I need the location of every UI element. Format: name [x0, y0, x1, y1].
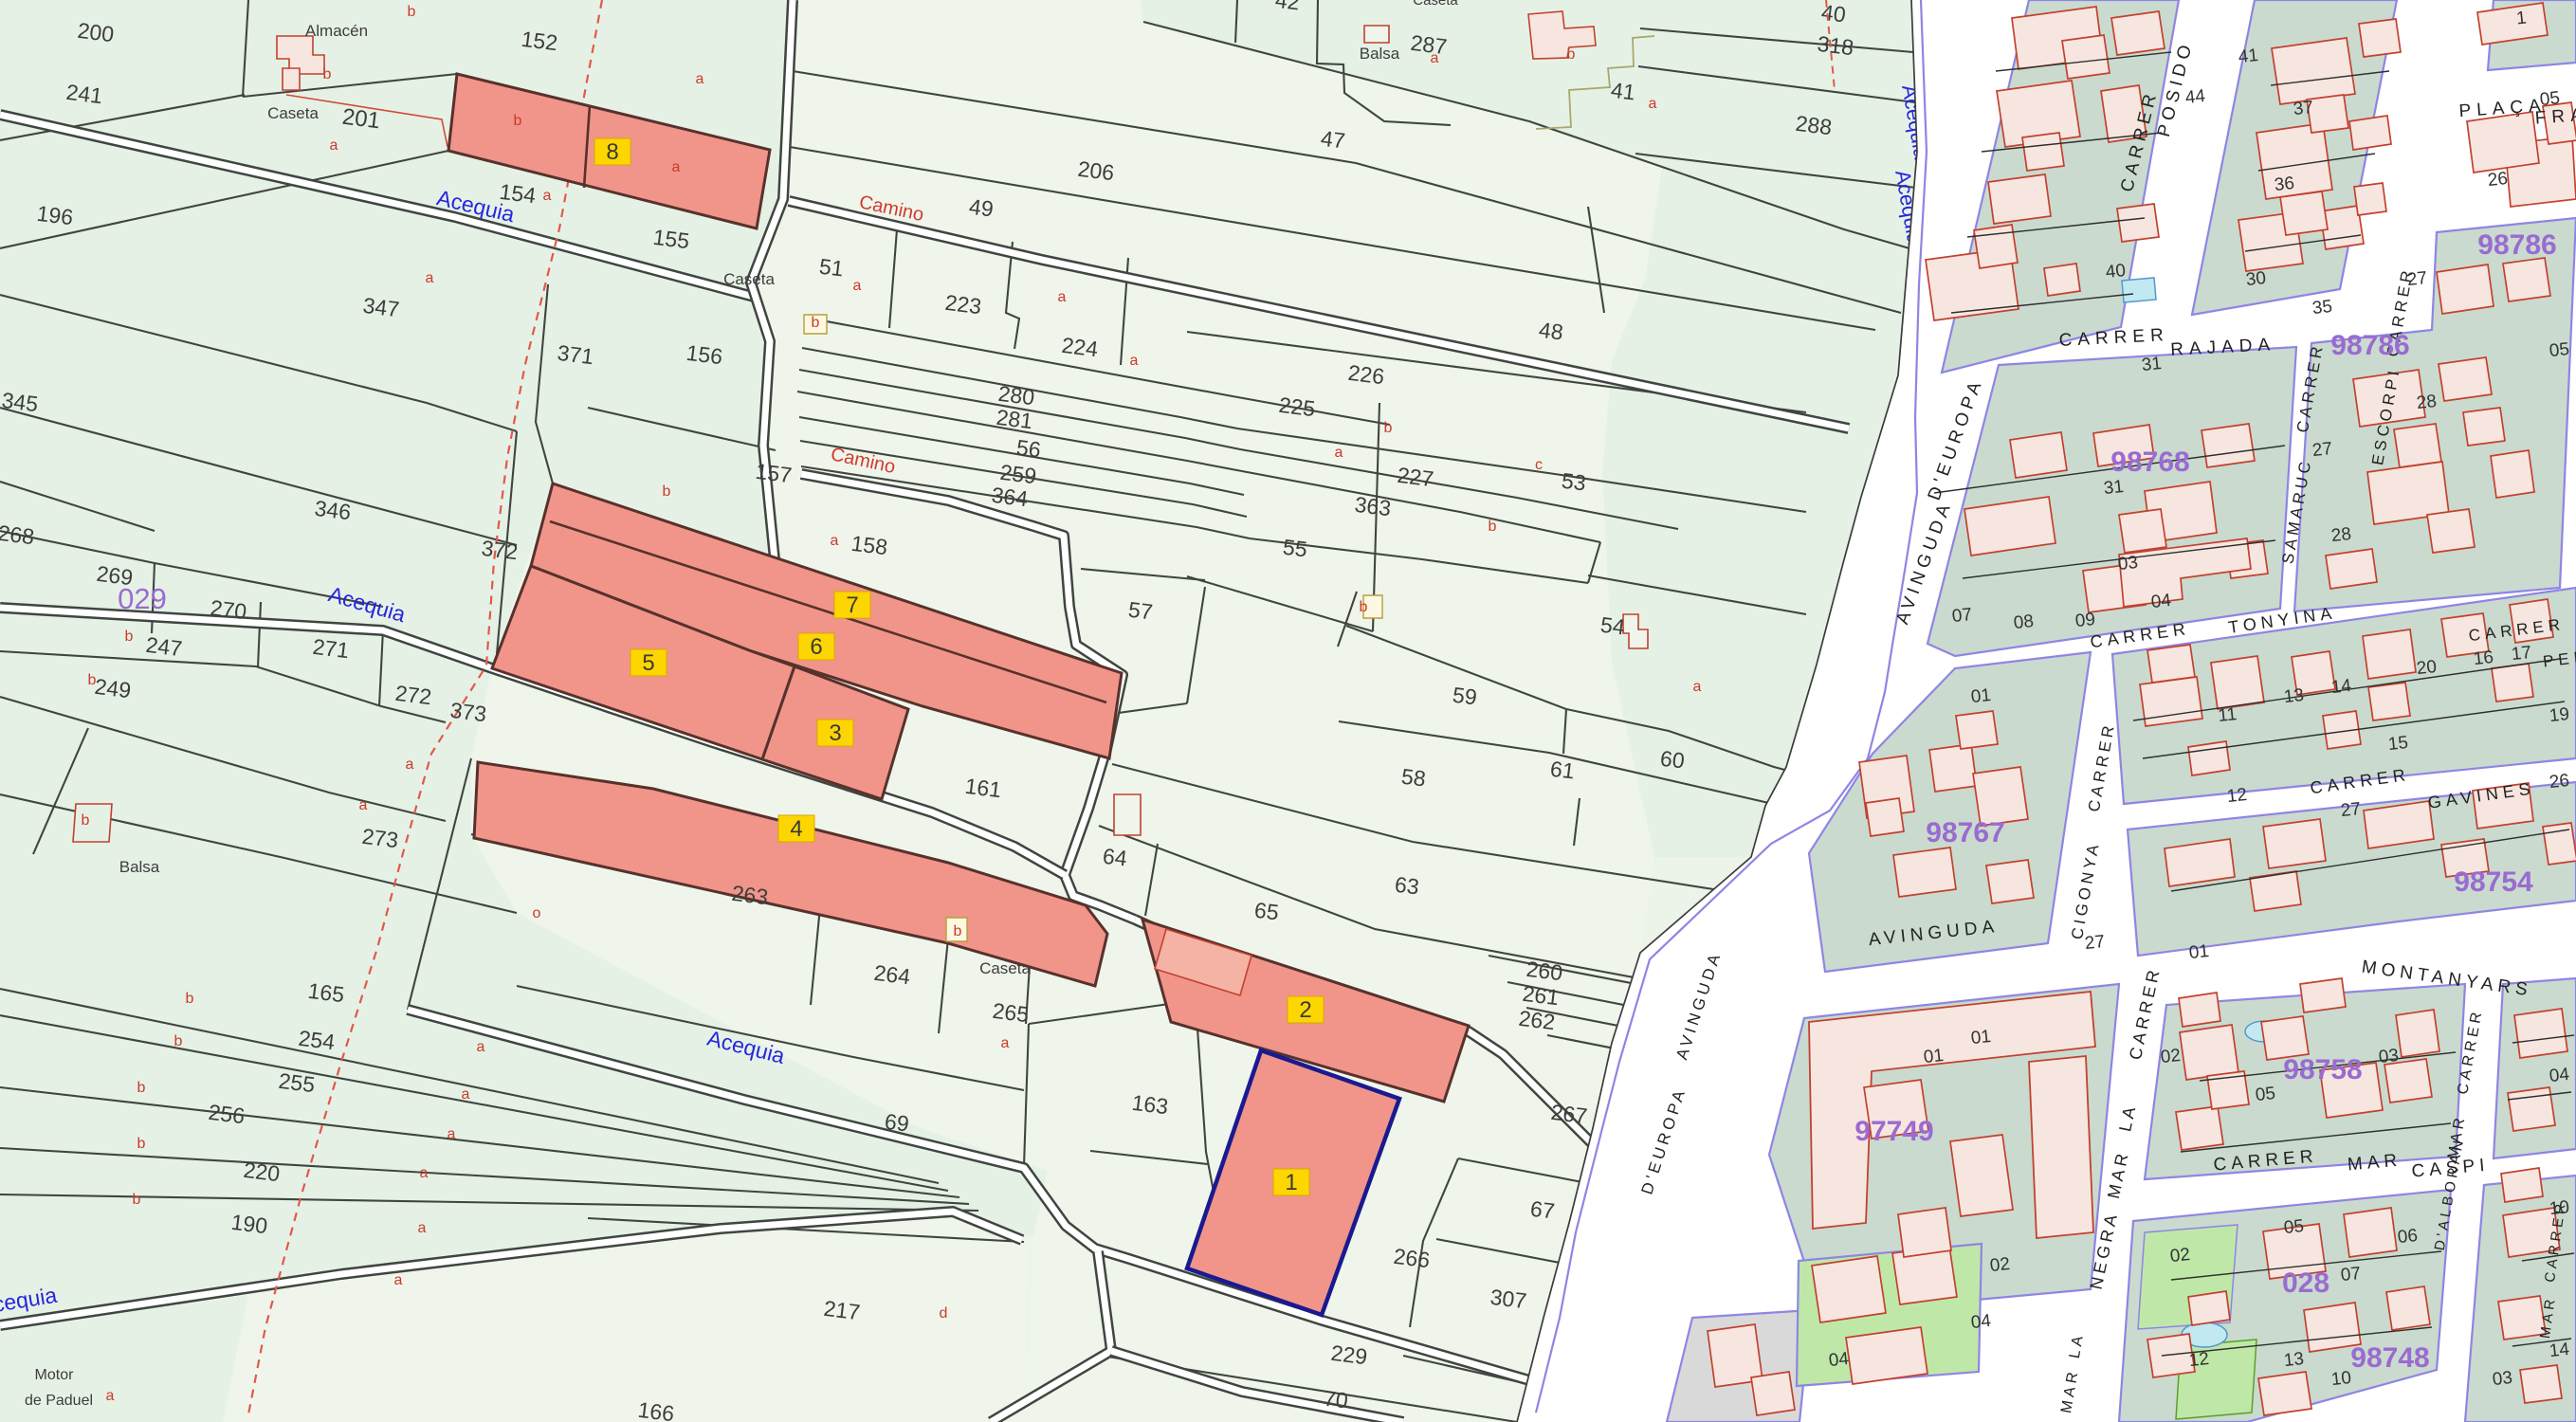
svg-text:b: b	[514, 113, 522, 129]
svg-text:262: 262	[1517, 1006, 1556, 1034]
svg-text:201: 201	[340, 104, 381, 135]
svg-text:268: 268	[0, 520, 36, 549]
svg-text:264: 264	[872, 960, 911, 990]
svg-text:13: 13	[2283, 685, 2305, 707]
svg-text:220: 220	[242, 1158, 281, 1186]
svg-text:Balsa: Balsa	[1360, 45, 1400, 63]
svg-text:a: a	[448, 1126, 456, 1142]
svg-text:12: 12	[2188, 1349, 2210, 1371]
svg-text:b: b	[174, 1033, 183, 1049]
svg-text:165: 165	[306, 978, 345, 1007]
svg-text:241: 241	[64, 80, 103, 108]
svg-text:19: 19	[2549, 704, 2570, 726]
svg-text:a: a	[1001, 1035, 1010, 1051]
svg-text:28: 28	[2330, 524, 2352, 546]
svg-text:20: 20	[2416, 657, 2438, 679]
svg-text:152: 152	[520, 27, 558, 55]
svg-text:265: 265	[991, 998, 1030, 1027]
svg-text:249: 249	[93, 674, 132, 702]
svg-text:1: 1	[2515, 9, 2528, 29]
svg-text:27: 27	[2406, 268, 2428, 290]
svg-text:o: o	[533, 905, 541, 921]
svg-text:a: a	[1693, 679, 1702, 695]
svg-text:b: b	[88, 672, 97, 688]
svg-text:26: 26	[2487, 169, 2509, 191]
svg-text:01: 01	[2188, 941, 2210, 963]
svg-text:b: b	[1567, 46, 1576, 63]
svg-text:98748: 98748	[2350, 1342, 2429, 1374]
svg-text:58: 58	[1400, 764, 1428, 792]
svg-text:d: d	[940, 1305, 948, 1322]
svg-text:28: 28	[2416, 392, 2438, 413]
svg-text:1: 1	[1285, 1170, 1297, 1195]
svg-text:13: 13	[2283, 1349, 2305, 1371]
svg-text:10: 10	[2549, 1197, 2570, 1219]
svg-text:02: 02	[2169, 1245, 2191, 1267]
svg-text:15: 15	[2387, 733, 2409, 755]
svg-text:36: 36	[2274, 173, 2295, 195]
svg-text:03: 03	[2378, 1046, 2400, 1067]
svg-text:a: a	[1649, 96, 1657, 112]
svg-text:41: 41	[2238, 46, 2259, 67]
svg-text:224: 224	[1060, 333, 1099, 362]
svg-text:31: 31	[2141, 354, 2163, 375]
svg-text:345: 345	[0, 388, 39, 416]
svg-text:157: 157	[754, 459, 793, 487]
svg-text:b: b	[954, 923, 962, 939]
svg-text:b: b	[133, 1192, 141, 1208]
svg-text:61: 61	[1549, 757, 1577, 784]
svg-text:372: 372	[480, 536, 519, 564]
svg-text:30: 30	[2245, 268, 2267, 290]
svg-text:373: 373	[448, 698, 487, 726]
svg-text:a: a	[106, 1388, 115, 1404]
svg-text:b: b	[1360, 599, 1368, 615]
svg-text:04: 04	[2150, 591, 2173, 612]
svg-text:40: 40	[2105, 261, 2127, 283]
svg-text:190: 190	[229, 1210, 268, 1238]
svg-text:a: a	[1431, 50, 1439, 66]
svg-text:97749: 97749	[1854, 1116, 1933, 1147]
svg-text:288: 288	[1794, 111, 1833, 139]
svg-text:10: 10	[2330, 1368, 2352, 1390]
svg-text:247: 247	[144, 632, 183, 661]
svg-text:03: 03	[2492, 1368, 2513, 1390]
svg-text:49: 49	[968, 194, 996, 222]
svg-text:a: a	[1058, 289, 1067, 305]
svg-text:35: 35	[2311, 297, 2333, 319]
svg-text:166: 166	[636, 1397, 675, 1422]
svg-text:09: 09	[2074, 610, 2096, 631]
svg-text:371: 371	[556, 340, 594, 369]
svg-text:a: a	[426, 270, 434, 286]
svg-text:Balsa: Balsa	[119, 858, 160, 876]
svg-text:54: 54	[1599, 612, 1627, 640]
svg-text:17: 17	[2511, 643, 2532, 665]
svg-text:029: 029	[118, 582, 167, 615]
svg-text:44: 44	[2184, 86, 2207, 108]
svg-text:05: 05	[2255, 1084, 2276, 1105]
svg-text:16: 16	[2473, 647, 2494, 669]
svg-text:364: 364	[990, 483, 1029, 512]
svg-text:206: 206	[1076, 156, 1115, 185]
svg-text:12: 12	[2226, 785, 2248, 807]
svg-text:a: a	[1130, 353, 1139, 369]
svg-text:56: 56	[1015, 435, 1043, 463]
svg-text:08: 08	[2013, 611, 2035, 633]
svg-text:4: 4	[790, 816, 802, 842]
svg-text:b: b	[82, 812, 90, 829]
svg-text:Caseta: Caseta	[1413, 0, 1458, 9]
svg-text:Motor: Motor	[35, 1367, 75, 1383]
svg-text:70: 70	[1323, 1386, 1350, 1413]
svg-text:b: b	[1489, 519, 1497, 535]
svg-text:06: 06	[2397, 1226, 2419, 1248]
svg-text:51: 51	[818, 254, 846, 282]
svg-text:04: 04	[1970, 1311, 1993, 1333]
svg-text:98754: 98754	[2454, 866, 2533, 898]
svg-text:01: 01	[1923, 1046, 1945, 1067]
svg-text:363: 363	[1353, 492, 1392, 520]
svg-text:a: a	[543, 188, 552, 204]
svg-text:14: 14	[2549, 1340, 2571, 1361]
svg-text:155: 155	[651, 225, 690, 253]
svg-text:04: 04	[2549, 1065, 2571, 1086]
svg-text:31: 31	[2103, 477, 2125, 499]
svg-text:223: 223	[943, 290, 982, 319]
svg-text:55: 55	[1282, 535, 1309, 562]
svg-text:69: 69	[884, 1109, 911, 1137]
svg-text:a: a	[420, 1165, 429, 1181]
svg-text:27: 27	[2084, 932, 2106, 954]
svg-text:b: b	[1384, 420, 1393, 436]
svg-text:161: 161	[963, 774, 1002, 802]
svg-text:270: 270	[209, 595, 247, 624]
svg-text:2: 2	[1299, 997, 1311, 1023]
svg-text:196: 196	[35, 201, 74, 229]
svg-text:281: 281	[995, 405, 1033, 433]
svg-text:7: 7	[846, 592, 858, 618]
svg-text:41: 41	[1610, 78, 1637, 105]
svg-text:de Paduel: de Paduel	[25, 1393, 93, 1409]
svg-text:98786: 98786	[2330, 330, 2409, 361]
svg-text:b: b	[186, 991, 194, 1007]
svg-text:225: 225	[1277, 392, 1316, 421]
svg-text:272: 272	[393, 681, 432, 709]
svg-text:98786: 98786	[2477, 229, 2556, 261]
svg-text:156: 156	[685, 340, 723, 369]
svg-text:98768: 98768	[2110, 447, 2189, 478]
svg-text:a: a	[696, 71, 704, 87]
svg-text:229: 229	[1329, 1340, 1368, 1369]
svg-text:8: 8	[606, 139, 618, 165]
svg-text:a: a	[477, 1039, 485, 1055]
svg-text:01: 01	[1970, 685, 1992, 707]
svg-text:5: 5	[642, 650, 654, 676]
svg-text:05: 05	[2549, 339, 2570, 361]
svg-text:217: 217	[822, 1296, 861, 1324]
svg-text:266: 266	[1392, 1244, 1431, 1272]
svg-text:b: b	[663, 483, 671, 500]
svg-text:255: 255	[277, 1068, 316, 1097]
svg-text:03: 03	[2117, 553, 2139, 574]
svg-text:a: a	[394, 1272, 403, 1288]
svg-text:14: 14	[2330, 676, 2353, 698]
svg-text:226: 226	[1346, 360, 1385, 389]
svg-text:a: a	[418, 1220, 427, 1236]
svg-text:a: a	[330, 137, 338, 154]
svg-text:67: 67	[1529, 1196, 1557, 1224]
svg-text:a: a	[462, 1086, 470, 1103]
svg-text:59: 59	[1452, 683, 1479, 710]
svg-text:05: 05	[2283, 1216, 2305, 1238]
svg-text:b: b	[408, 4, 416, 20]
svg-text:27: 27	[2311, 439, 2333, 461]
svg-text:02: 02	[2160, 1046, 2182, 1067]
svg-text:346: 346	[313, 496, 352, 524]
svg-text:c: c	[1535, 457, 1543, 473]
svg-text:63: 63	[1394, 872, 1421, 900]
svg-text:04: 04	[1828, 1349, 1851, 1371]
svg-text:02: 02	[1989, 1254, 2011, 1276]
svg-text:b: b	[125, 629, 134, 645]
svg-text:Almacén: Almacén	[305, 22, 368, 40]
svg-text:Caseta: Caseta	[723, 270, 775, 288]
svg-text:07: 07	[2340, 1264, 2362, 1285]
svg-text:a: a	[359, 797, 368, 813]
svg-text:b: b	[812, 315, 820, 331]
svg-text:47: 47	[1320, 126, 1347, 154]
svg-text:26: 26	[2549, 771, 2570, 793]
svg-text:b: b	[323, 66, 332, 82]
svg-text:254: 254	[297, 1026, 336, 1055]
svg-text:b: b	[137, 1080, 146, 1096]
svg-text:3: 3	[829, 720, 841, 746]
svg-text:271: 271	[311, 634, 350, 663]
svg-text:07: 07	[1951, 605, 1973, 627]
svg-text:98758: 98758	[2283, 1054, 2362, 1085]
svg-text:a: a	[853, 278, 862, 294]
svg-text:53: 53	[1561, 468, 1588, 496]
svg-text:273: 273	[360, 824, 399, 852]
svg-text:01: 01	[1970, 1027, 1992, 1048]
svg-text:256: 256	[207, 1100, 246, 1128]
svg-text:40: 40	[1820, 0, 1848, 27]
svg-text:a: a	[1335, 445, 1343, 461]
svg-text:267: 267	[1549, 1100, 1588, 1128]
svg-text:37: 37	[2293, 98, 2314, 119]
svg-text:48: 48	[1538, 318, 1565, 345]
svg-text:11: 11	[2218, 704, 2238, 726]
svg-text:318: 318	[1816, 31, 1854, 60]
svg-text:05: 05	[2539, 88, 2561, 110]
svg-text:347: 347	[361, 293, 400, 321]
svg-text:6: 6	[810, 634, 822, 660]
svg-text:200: 200	[76, 18, 115, 46]
svg-text:Caseta: Caseta	[267, 104, 319, 122]
svg-text:64: 64	[1102, 844, 1129, 871]
svg-text:b: b	[137, 1136, 146, 1152]
svg-text:163: 163	[1130, 1090, 1169, 1119]
svg-text:65: 65	[1253, 898, 1281, 925]
svg-text:227: 227	[1396, 463, 1434, 491]
svg-text:a: a	[406, 757, 414, 773]
svg-text:263: 263	[730, 881, 769, 909]
svg-text:a: a	[672, 159, 681, 175]
svg-text:307: 307	[1489, 1285, 1527, 1313]
svg-text:a: a	[831, 533, 839, 549]
svg-text:60: 60	[1659, 746, 1687, 774]
svg-text:Caseta: Caseta	[979, 959, 1031, 977]
svg-text:27: 27	[2340, 799, 2362, 821]
svg-text:158: 158	[850, 531, 888, 559]
svg-text:028: 028	[2282, 1267, 2329, 1299]
svg-text:98767: 98767	[1926, 817, 2004, 848]
svg-text:57: 57	[1127, 597, 1155, 625]
svg-text:287: 287	[1409, 30, 1448, 59]
